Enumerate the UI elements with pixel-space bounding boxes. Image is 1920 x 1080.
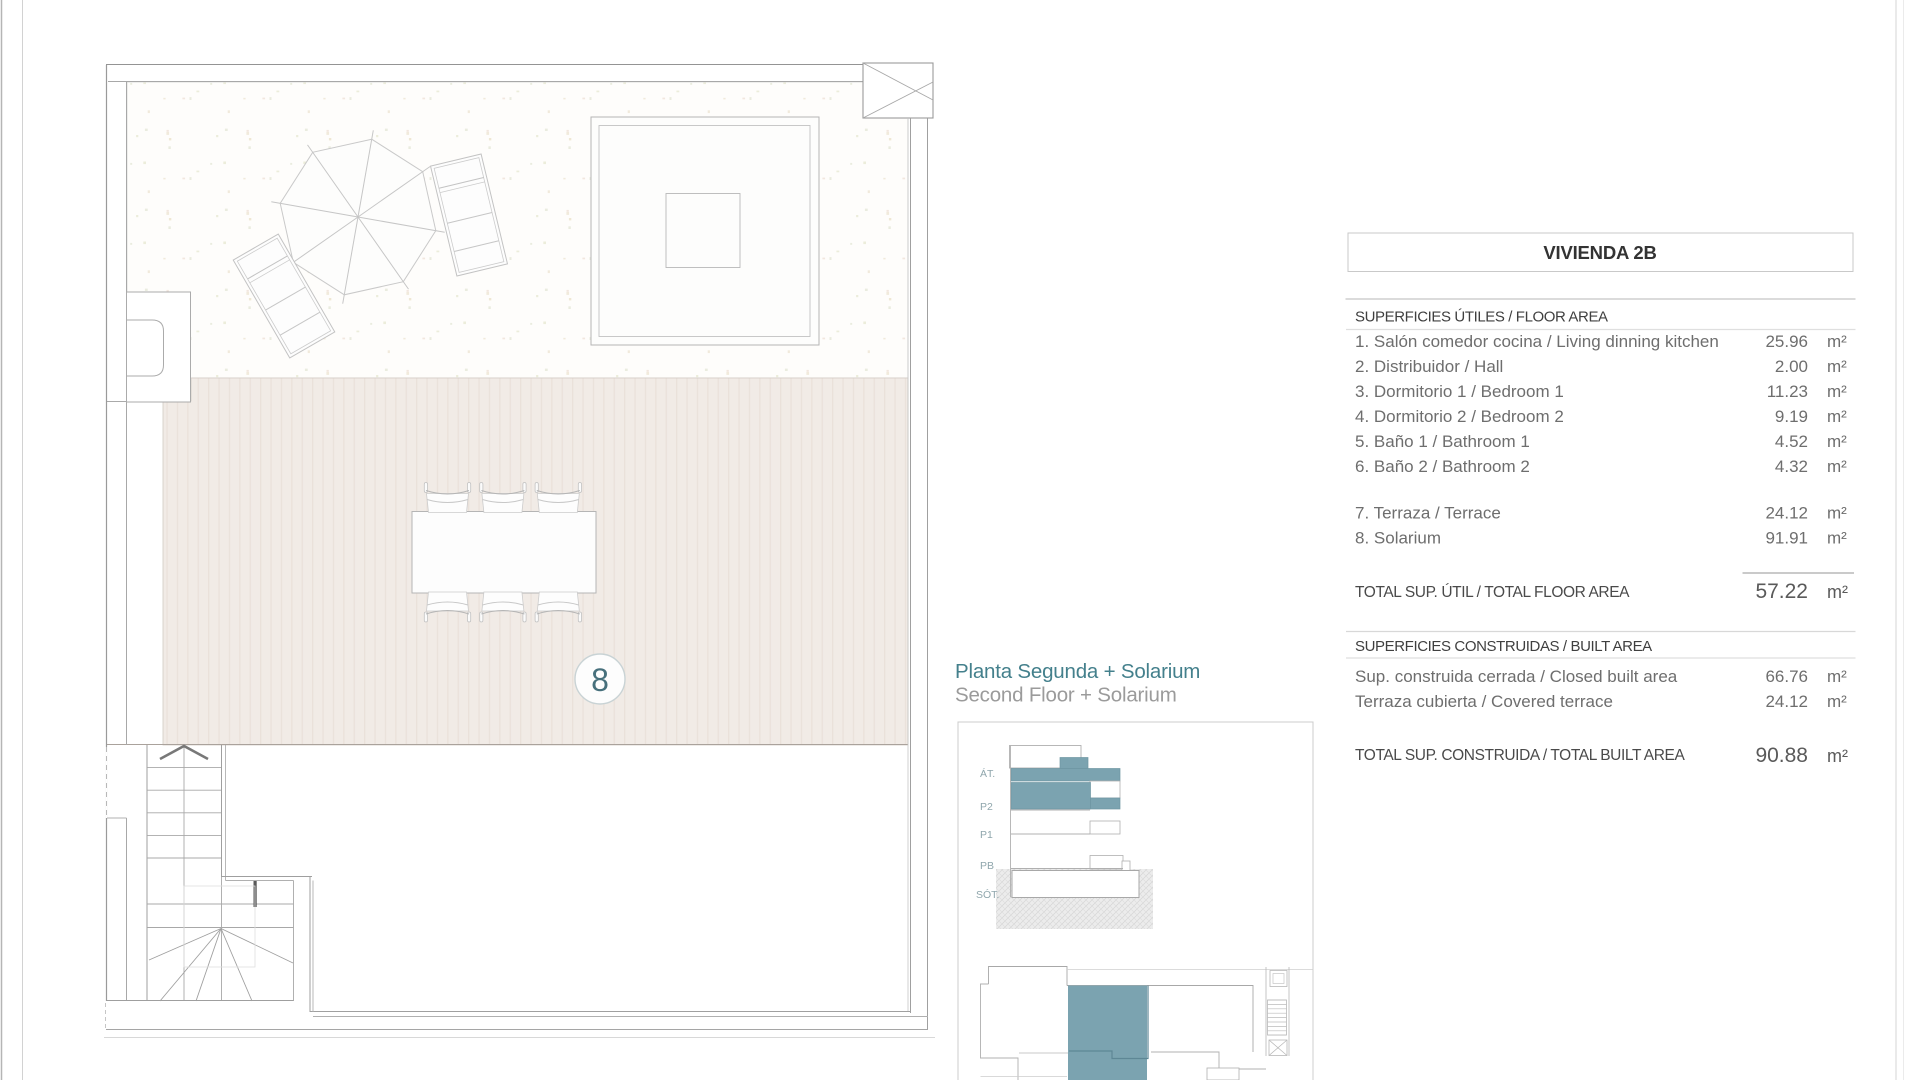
svg-text:7. Terraza / Terrace: 7. Terraza / Terrace: [1355, 504, 1501, 523]
svg-text:90.88: 90.88: [1755, 744, 1808, 767]
svg-text:Terraza cubierta / Covered ter: Terraza cubierta / Covered terrace: [1355, 692, 1613, 711]
svg-text:TOTAL SUP. ÚTIL / TOTAL FLOOR: TOTAL SUP. ÚTIL / TOTAL FLOOR AREA: [1355, 584, 1630, 601]
svg-text:4.32: 4.32: [1775, 457, 1808, 476]
svg-text:8: 8: [591, 662, 609, 698]
svg-text:4.52: 4.52: [1775, 432, 1808, 451]
svg-text:TOTAL SUP. CONSTRUIDA / TOTAL: TOTAL SUP. CONSTRUIDA / TOTAL BUILT AREA: [1355, 747, 1685, 764]
svg-text:m²: m²: [1827, 746, 1848, 766]
svg-text:m²: m²: [1827, 332, 1847, 351]
svg-text:P1: P1: [980, 829, 993, 841]
svg-text:5. Baño 1 / Bathroom 1: 5. Baño 1 / Bathroom 1: [1355, 432, 1530, 451]
svg-text:m²: m²: [1827, 667, 1847, 686]
svg-text:Sup. construida cerrada / Clos: Sup. construida cerrada / Closed built a…: [1355, 667, 1678, 686]
svg-text:3. Dormitorio 1 / Bedroom 1: 3. Dormitorio 1 / Bedroom 1: [1355, 382, 1564, 401]
svg-text:m²: m²: [1827, 457, 1847, 476]
svg-text:Second Floor + Solarium: Second Floor + Solarium: [955, 684, 1177, 707]
svg-text:P2: P2: [980, 801, 993, 813]
svg-text:9.19: 9.19: [1775, 407, 1808, 426]
svg-text:4. Dormitorio 2 / Bedroom 2: 4. Dormitorio 2 / Bedroom 2: [1355, 407, 1564, 426]
svg-text:24.12: 24.12: [1765, 692, 1808, 711]
svg-text:57.22: 57.22: [1755, 580, 1808, 603]
svg-text:91.91: 91.91: [1765, 529, 1808, 548]
svg-text:m²: m²: [1827, 504, 1847, 523]
svg-text:ÁT.: ÁT.: [980, 767, 995, 780]
svg-text:66.76: 66.76: [1765, 667, 1808, 686]
svg-text:m²: m²: [1827, 692, 1847, 711]
svg-text:m²: m²: [1827, 407, 1847, 426]
svg-text:SÓT.: SÓT.: [976, 888, 999, 901]
svg-text:2.00: 2.00: [1775, 357, 1808, 376]
svg-text:m²: m²: [1827, 357, 1847, 376]
svg-text:m²: m²: [1827, 529, 1847, 548]
svg-text:Planta Segunda + Solarium: Planta Segunda + Solarium: [955, 660, 1200, 683]
svg-text:m²: m²: [1827, 432, 1847, 451]
svg-text:m²: m²: [1827, 382, 1847, 401]
svg-text:2. Distribuidor / Hall: 2. Distribuidor / Hall: [1355, 357, 1503, 376]
svg-text:PB: PB: [980, 860, 994, 872]
svg-text:SUPERFICIES ÚTILES / FLOOR ARE: SUPERFICIES ÚTILES / FLOOR AREA: [1355, 309, 1608, 326]
svg-text:8. Solarium: 8. Solarium: [1355, 529, 1441, 548]
svg-text:VIVIENDA 2B: VIVIENDA 2B: [1543, 242, 1656, 263]
svg-text:6. Baño 2 / Bathroom 2: 6. Baño 2 / Bathroom 2: [1355, 457, 1530, 476]
svg-text:1. Salón comedor cocina / Livi: 1. Salón comedor cocina / Living dinning…: [1355, 332, 1719, 351]
svg-text:m²: m²: [1827, 582, 1848, 602]
svg-text:SUPERFICIES CONSTRUIDAS / BUIL: SUPERFICIES CONSTRUIDAS / BUILT AREA: [1355, 638, 1652, 655]
svg-text:11.23: 11.23: [1767, 382, 1808, 401]
svg-text:25.96: 25.96: [1765, 332, 1808, 351]
svg-text:24.12: 24.12: [1765, 504, 1808, 523]
